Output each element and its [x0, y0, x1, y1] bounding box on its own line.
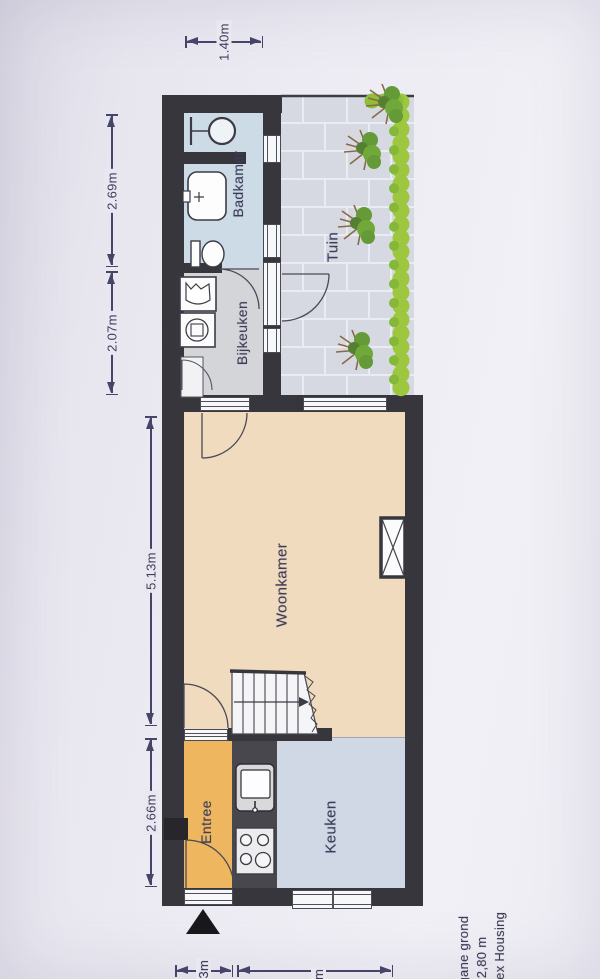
footer-company: Alex Housing	[492, 912, 507, 979]
room-label-entree: Entree	[198, 800, 214, 844]
dimension-tick	[232, 965, 234, 977]
dimension-arrow	[107, 273, 115, 284]
dimension-label-front-left: .93m	[196, 958, 211, 979]
dimension-arrow	[107, 382, 115, 393]
kitchen-counter	[232, 741, 277, 888]
window-glass-lines	[267, 136, 277, 162]
dimension-tick	[262, 36, 264, 48]
dimension-arrow	[146, 740, 154, 751]
dimension-back-width: 1.40m	[186, 34, 262, 50]
room-label-tuin: Tuin	[325, 232, 342, 262]
north-arrow-icon	[186, 909, 220, 934]
threshold-lines	[201, 401, 249, 407]
door-opening-bijkeuken-woonkamer	[200, 397, 250, 411]
room-label-bijkeuken: Bijkeuken	[234, 301, 250, 365]
dimension-arrow	[220, 966, 231, 974]
window-woonkamer-rear	[303, 397, 387, 411]
footer-ceiling-height: = 2,80 m	[474, 937, 489, 979]
wall-left	[162, 95, 184, 906]
threshold-lines	[185, 733, 227, 737]
badkamer-floor	[184, 113, 263, 268]
dimension-label: 2.69m	[105, 169, 120, 213]
dimension-arrow	[107, 116, 115, 127]
keuken-floor	[277, 737, 405, 889]
dimension-tick	[106, 394, 118, 396]
window-bijkeuken	[263, 328, 281, 353]
footer-floor-name: egane grond	[456, 916, 471, 979]
door-frame-lines	[267, 263, 277, 325]
threshold-lines	[185, 893, 232, 901]
window-mullion	[332, 891, 334, 908]
dimension-label: 1.40m	[217, 20, 232, 64]
dimension-label: 2.66m	[144, 791, 159, 835]
window-badkamer-1	[263, 135, 281, 163]
dimension-arrow	[146, 418, 154, 429]
room-label-keuken: Keuken	[323, 800, 340, 853]
dimension-arrow	[146, 713, 154, 724]
wall-stair	[228, 728, 332, 741]
dimension-label: 2.07m	[105, 311, 120, 355]
front-door-opening	[184, 889, 233, 905]
dimension-woonkamer-length: 5.13m	[143, 417, 159, 725]
window-glass-lines	[267, 225, 277, 257]
window-keuken	[292, 890, 372, 909]
dimension-arrow	[239, 966, 250, 974]
door-frame-tuin	[263, 262, 281, 326]
wall-badkamer-bijkeuken	[184, 263, 222, 273]
dimension-tick	[106, 266, 118, 268]
room-label-badkamer: Badkamer	[230, 150, 246, 217]
dimension-arrow	[107, 254, 115, 265]
dimension-tick	[145, 886, 157, 888]
wall-right	[405, 395, 423, 906]
meter-box	[164, 818, 188, 840]
woonkamer-floor	[184, 412, 405, 737]
floorplan-photo: Badkamer Bijkeuken Tuin Woonkamer Entree…	[0, 0, 600, 979]
dimension-arrow	[380, 966, 391, 974]
window-badkamer-2	[263, 224, 281, 258]
tuin-paving	[281, 95, 414, 395]
dimension-label-front-right: 70m	[311, 967, 326, 979]
room-label-woonkamer: Woonkamer	[274, 543, 291, 627]
dimension-tick	[392, 965, 394, 977]
bijkeuken-floor	[184, 268, 263, 398]
dimension-arrow	[187, 37, 198, 45]
dimension-badkamer-length: 2.69m	[104, 115, 120, 266]
dimension-entree-length: 2.66m	[143, 739, 159, 886]
dimension-bijkeuken-length: 2.07m	[104, 272, 120, 394]
dimension-arrow	[177, 966, 188, 974]
dimension-tick	[145, 725, 157, 727]
dimension-label: 5.13m	[144, 549, 159, 593]
window-glass-lines	[267, 329, 277, 352]
window-glass-lines	[304, 401, 386, 407]
dimension-arrow	[146, 874, 154, 885]
dimension-arrow	[250, 37, 261, 45]
door-opening-woonkamer-entree	[184, 729, 228, 741]
